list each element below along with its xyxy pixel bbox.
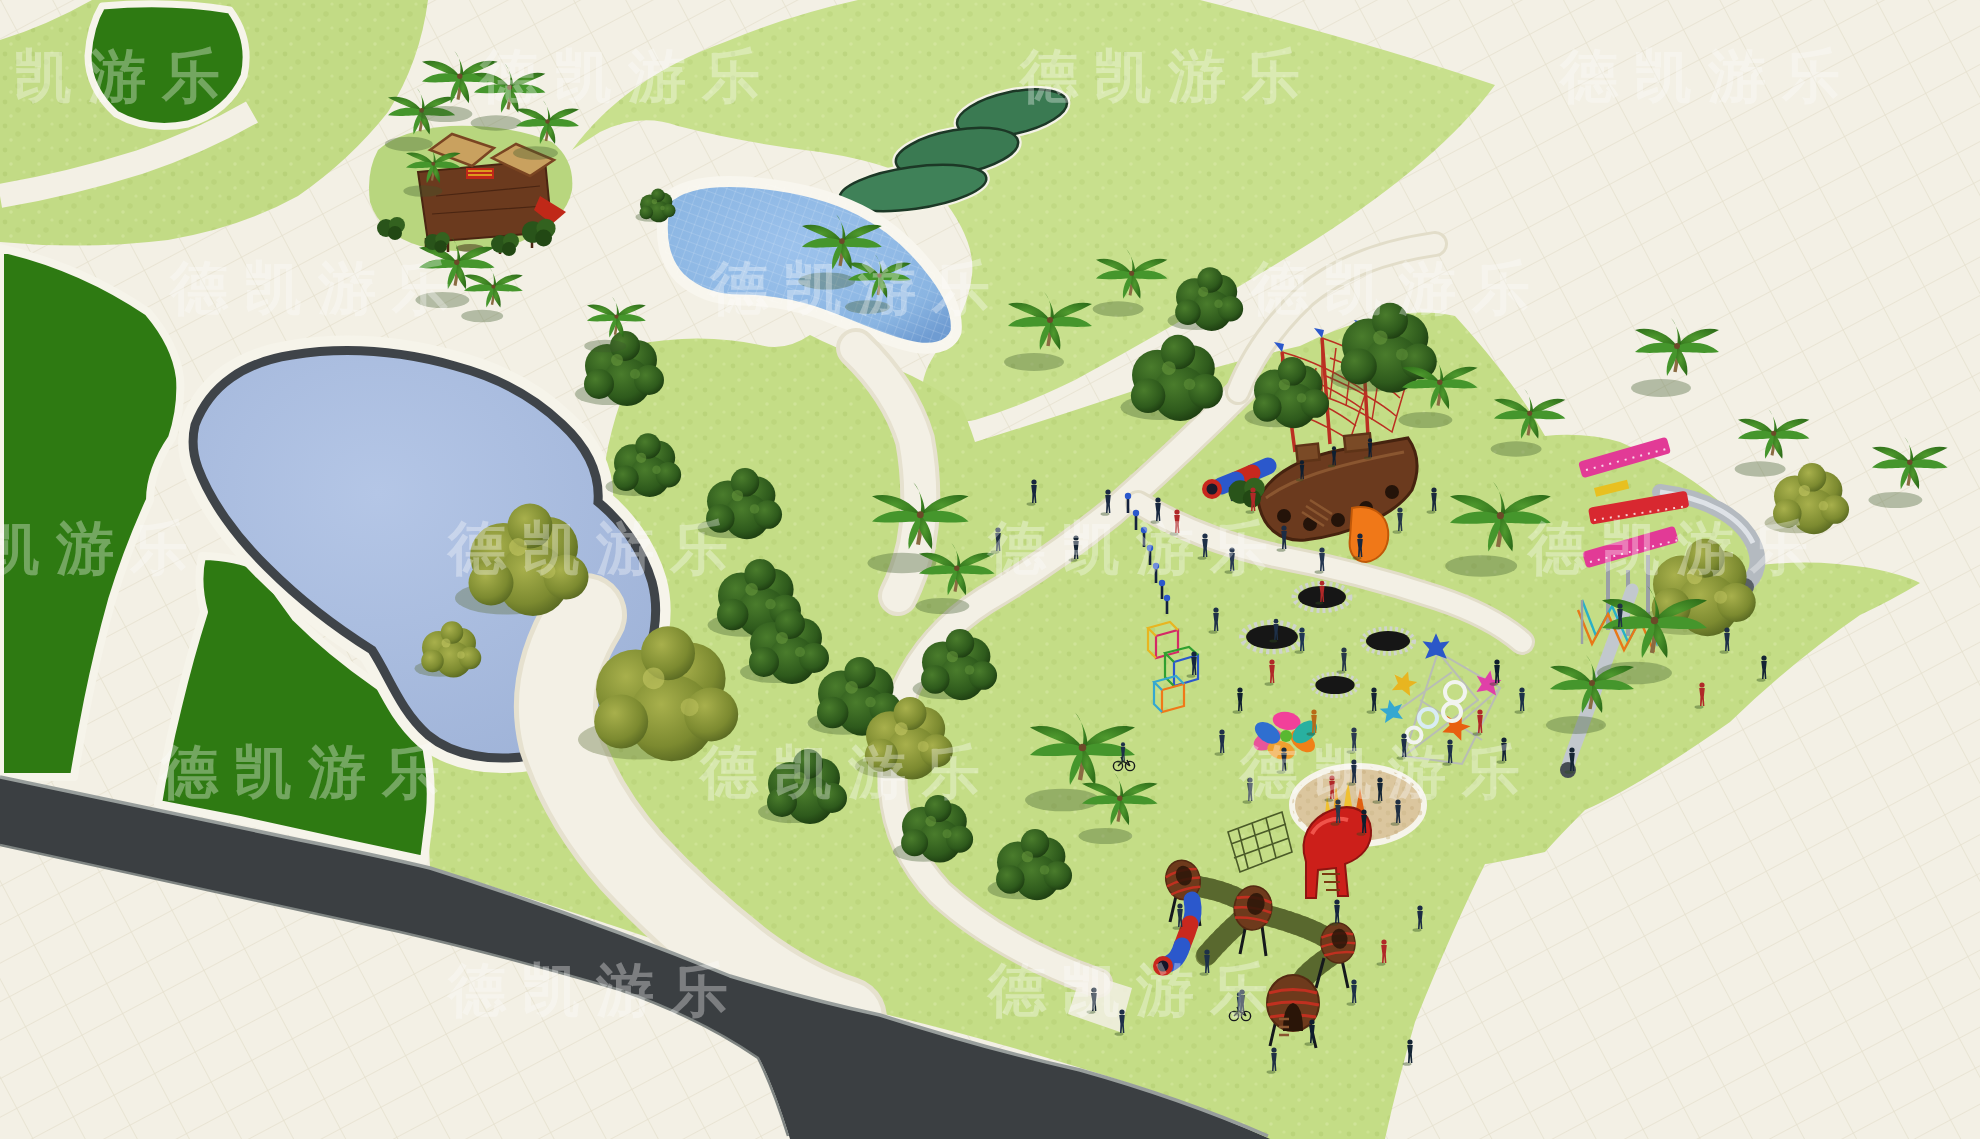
watermark-text: 德凯游乐 bbox=[1018, 42, 1316, 110]
watermark-text: 德凯游乐 bbox=[446, 514, 744, 582]
watermark-text: 德凯游乐 bbox=[158, 738, 456, 806]
red-banner bbox=[466, 168, 494, 179]
watermark-text: 德凯游乐 bbox=[446, 956, 744, 1024]
watermark-text: 德凯游乐 bbox=[698, 738, 996, 806]
watermark-text: 德凯游乐 bbox=[986, 514, 1284, 582]
watermark-text: 德凯游乐 bbox=[1238, 738, 1536, 806]
watermark-text: 德凯游乐 bbox=[0, 42, 236, 110]
watermark-text: 德凯游乐 bbox=[986, 956, 1284, 1024]
watermark-text: 德凯游乐 bbox=[1248, 254, 1546, 322]
park-render: 德凯游乐 德凯游乐 德凯游乐 德凯游乐 德凯游乐 德凯游乐 德凯游乐 德凯游乐 … bbox=[0, 0, 1980, 1139]
watermark-text: 德凯游乐 bbox=[1526, 514, 1824, 582]
orange-slide bbox=[1350, 507, 1389, 562]
park-render-canvas: 德凯游乐 德凯游乐 德凯游乐 德凯游乐 德凯游乐 德凯游乐 德凯游乐 德凯游乐 … bbox=[0, 0, 1980, 1139]
watermark-text: 德凯游乐 bbox=[1558, 42, 1856, 110]
watermark-text: 德凯游乐 bbox=[708, 254, 1006, 322]
watermark-text: 德凯游乐 bbox=[168, 254, 466, 322]
watermark-text: 德凯游乐 bbox=[478, 42, 776, 110]
watermark-text: 德凯游乐 bbox=[0, 514, 204, 582]
